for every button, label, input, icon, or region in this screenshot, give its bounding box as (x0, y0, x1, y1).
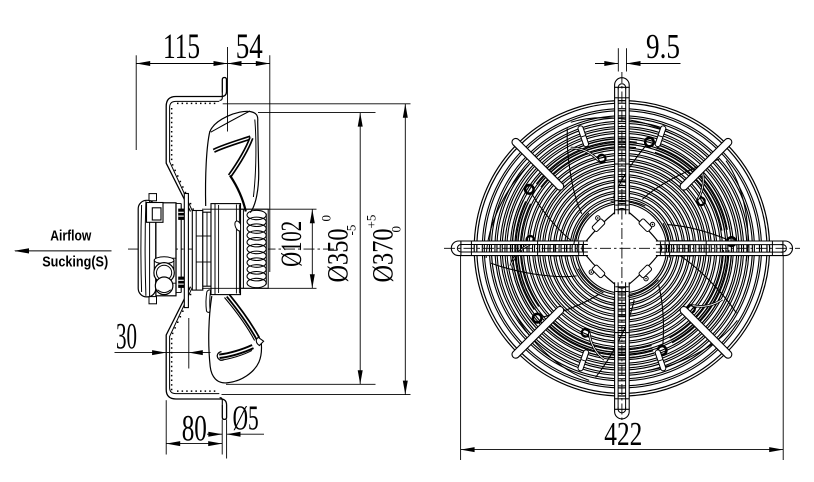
svg-text:422: 422 (604, 416, 642, 453)
svg-text:Airflow: Airflow (50, 228, 92, 244)
svg-text:115: 115 (163, 26, 200, 66)
svg-text:Ø350: Ø350 (322, 229, 355, 283)
svg-text:Sucking(S): Sucking(S) (42, 254, 108, 271)
svg-text:30: 30 (116, 317, 137, 358)
svg-text:-5: -5 (344, 225, 359, 236)
svg-text:0: 0 (389, 226, 404, 233)
svg-text:+5: +5 (364, 215, 379, 229)
svg-text:Ø102: Ø102 (275, 221, 308, 267)
svg-text:80: 80 (182, 408, 207, 449)
svg-text:54: 54 (236, 26, 263, 66)
svg-text:9.5: 9.5 (646, 27, 680, 66)
svg-text:Ø370: Ø370 (367, 229, 400, 283)
svg-text:Ø5: Ø5 (233, 399, 259, 438)
svg-text:0: 0 (319, 215, 334, 222)
